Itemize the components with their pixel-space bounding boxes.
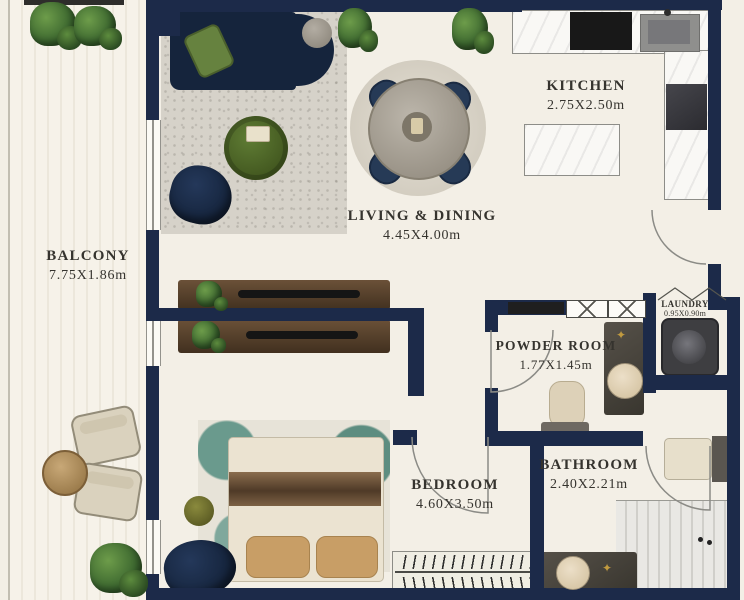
balcony-label: BALCONY 7.75X1.86m (16, 248, 160, 284)
room-dims: 7.75X1.86m (16, 268, 160, 284)
room-dims: 2.40X2.21m (512, 477, 666, 493)
living-dining-label: LIVING & DINING 4.45X4.00m (326, 208, 518, 244)
plant-icon (192, 321, 220, 349)
room-name: BATHROOM (512, 457, 666, 474)
kitchen-label: KITCHEN 2.75X2.50m (508, 78, 664, 114)
plant-icon (196, 281, 222, 307)
room-name: POWDER ROOM (486, 338, 626, 354)
laundry-label: LAUNDRY 0.95X0.90m (645, 299, 725, 318)
bathroom-label: BATHROOM 2.40X2.21m (512, 457, 666, 493)
plant-icon (338, 8, 372, 48)
plant-icon (90, 543, 142, 593)
plant-icon (30, 2, 76, 46)
room-name: BEDROOM (378, 477, 532, 494)
room-name: BALCONY (16, 248, 160, 265)
room-dims: 4.45X4.00m (326, 228, 518, 244)
plant-icon (74, 6, 116, 46)
floor-plan: ✦ ✦ BALCONY 7.75X1.86m LIVING & DINING 4… (0, 0, 744, 600)
room-name: LAUNDRY (645, 299, 725, 309)
room-dims: 4.60X3.50m (378, 497, 532, 513)
plant-icon (452, 8, 488, 50)
faucet-icon (664, 9, 671, 16)
room-dims: 2.75X2.50m (508, 98, 664, 114)
powder-room-label: POWDER ROOM 1.77X1.45m (486, 338, 626, 373)
entrance-door-arc (652, 210, 706, 264)
bedroom-label: BEDROOM 4.60X3.50m (378, 477, 532, 513)
room-name: KITCHEN (508, 78, 664, 95)
room-dims: 1.77X1.45m (486, 357, 626, 373)
room-name: LIVING & DINING (326, 208, 518, 225)
room-dims: 0.95X0.90m (645, 309, 725, 318)
